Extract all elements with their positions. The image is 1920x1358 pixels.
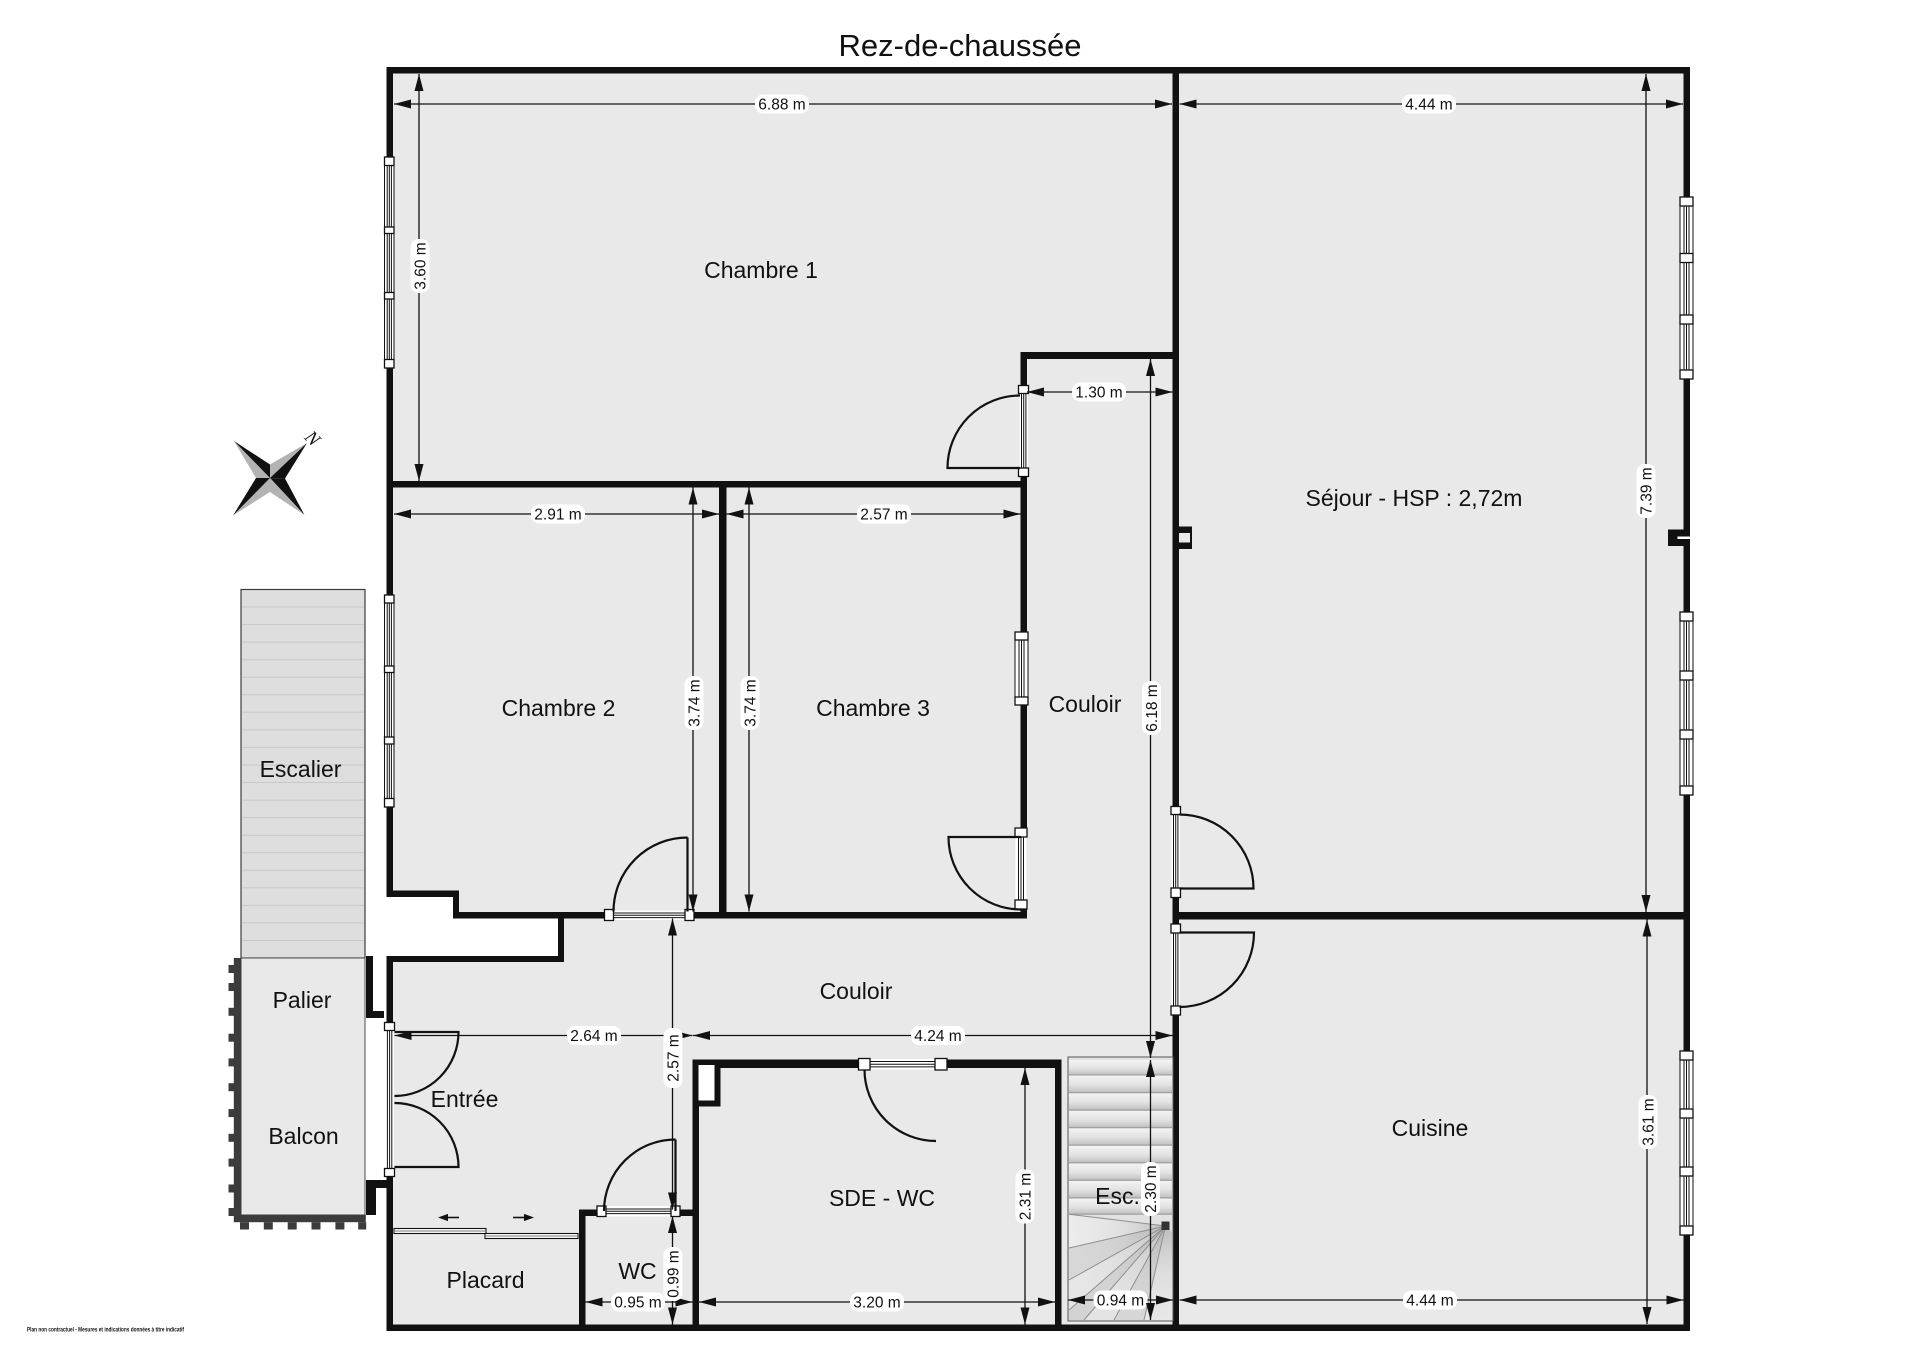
- svg-text:6.88 m: 6.88 m: [758, 97, 805, 114]
- svg-text:2.57 m: 2.57 m: [666, 1034, 683, 1081]
- svg-text:0.95 m: 0.95 m: [614, 1295, 661, 1312]
- svg-text:Esc.: Esc.: [1095, 1183, 1140, 1209]
- svg-text:6.18 m: 6.18 m: [1144, 684, 1161, 731]
- svg-text:7.39 m: 7.39 m: [1639, 467, 1656, 514]
- svg-text:Couloir: Couloir: [820, 978, 893, 1004]
- svg-text:Chambre 2: Chambre 2: [502, 695, 616, 721]
- svg-text:Chambre 1: Chambre 1: [704, 257, 818, 283]
- svg-text:3.20 m: 3.20 m: [853, 1295, 900, 1312]
- svg-text:Séjour - HSP : 2,72m: Séjour - HSP : 2,72m: [1306, 485, 1523, 511]
- svg-text:Entrée: Entrée: [431, 1086, 499, 1112]
- svg-text:3.61 m: 3.61 m: [1641, 1098, 1658, 1145]
- svg-text:Placard: Placard: [447, 1267, 525, 1293]
- svg-text:2.30 m: 2.30 m: [1143, 1165, 1160, 1212]
- svg-text:3.74 m: 3.74 m: [687, 679, 704, 726]
- svg-text:0.99 m: 0.99 m: [666, 1250, 683, 1297]
- svg-text:Escalier: Escalier: [260, 756, 342, 782]
- svg-text:SDE - WC: SDE - WC: [829, 1185, 935, 1211]
- svg-text:3.74 m: 3.74 m: [743, 679, 760, 726]
- svg-text:4.24 m: 4.24 m: [914, 1028, 961, 1045]
- svg-text:4.44 m: 4.44 m: [1406, 1293, 1453, 1310]
- svg-text:Couloir: Couloir: [1049, 691, 1122, 717]
- svg-text:Plan non contractuel - Mesures: Plan non contractuel - Mesures et indica…: [27, 1327, 185, 1334]
- svg-text:3.60 m: 3.60 m: [413, 242, 430, 289]
- svg-text:4.44 m: 4.44 m: [1405, 97, 1452, 114]
- svg-text:Chambre 3: Chambre 3: [816, 695, 930, 721]
- svg-text:Balcon: Balcon: [268, 1123, 338, 1149]
- svg-text:2.31 m: 2.31 m: [1018, 1173, 1035, 1220]
- svg-text:1.30 m: 1.30 m: [1075, 385, 1122, 402]
- svg-text:Palier: Palier: [273, 987, 332, 1013]
- svg-text:WC: WC: [618, 1258, 656, 1284]
- svg-text:2.64 m: 2.64 m: [570, 1028, 617, 1045]
- svg-text:Rez-de-chaussée: Rez-de-chaussée: [839, 28, 1082, 63]
- svg-text:2.57 m: 2.57 m: [860, 507, 907, 524]
- svg-text:Cuisine: Cuisine: [1392, 1115, 1469, 1141]
- svg-text:0.94 m: 0.94 m: [1097, 1293, 1144, 1310]
- svg-text:2.91 m: 2.91 m: [534, 507, 581, 524]
